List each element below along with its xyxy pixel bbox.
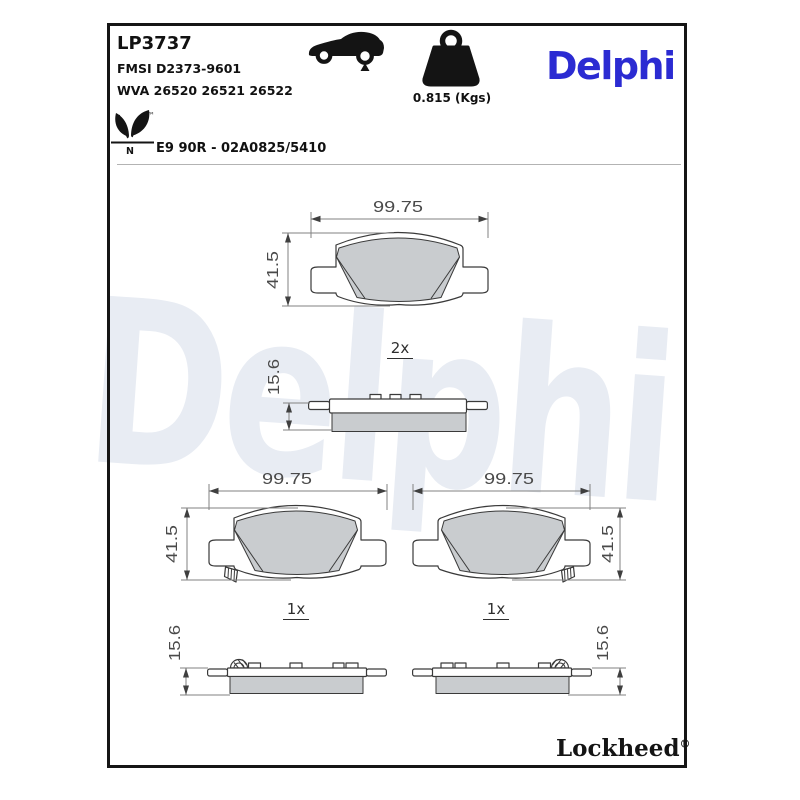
- delphi-logo: Delphi: [546, 44, 675, 88]
- bottom-right-pad-height-dimension: 41.5: [498, 498, 640, 590]
- svg-text:15.6: 15.6: [266, 359, 283, 395]
- lockheed-brand: Lockheed®: [556, 735, 691, 762]
- bottom-left-pad-height-dimension: 41.5: [163, 498, 305, 590]
- bottom-right-pad-thickness-dimension: 15.6: [556, 622, 642, 702]
- lockheed-wordmark: Lockheed: [556, 735, 680, 762]
- svg-text:15.6: 15.6: [595, 625, 612, 661]
- svg-text:41.5: 41.5: [600, 525, 617, 563]
- top-pad-thickness-dimension: 15.6: [256, 356, 344, 436]
- bottom-left-pad-quantity-label: 1x: [283, 600, 309, 620]
- bottom-right-pad-quantity-label: 1x: [483, 600, 509, 620]
- registered-trademark-symbol: ®: [680, 737, 691, 750]
- leaf-n-label: N: [126, 146, 134, 157]
- svg-text:99.75: 99.75: [373, 199, 423, 216]
- svg-text:99.75: 99.75: [262, 471, 312, 488]
- weight-value: 0.815 (Kgs): [404, 91, 500, 105]
- wva-reference: WVA 26520 26521 26522: [117, 83, 293, 98]
- svg-text:15.6: 15.6: [167, 625, 184, 661]
- car-rear-axle-icon: [306, 28, 388, 74]
- part-number: LP3737: [117, 33, 192, 54]
- fmsi-reference: FMSI D2373-9601: [117, 61, 241, 76]
- datasheet-page: { "header": { "part_number": "LP3737", "…: [0, 0, 800, 800]
- svg-text:99.75: 99.75: [484, 471, 534, 488]
- top-pad-height-dimension: 41.5: [260, 224, 400, 316]
- svg-text:41.5: 41.5: [265, 251, 282, 289]
- top-pad-quantity-label: 2x: [387, 339, 413, 359]
- leaf-trademark: ™: [147, 111, 155, 120]
- svg-text:41.5: 41.5: [164, 525, 181, 563]
- weight-icon: [419, 28, 483, 90]
- header-divider: [117, 164, 681, 165]
- homologation-number: E9 90R - 02A0825/5410: [156, 141, 326, 156]
- eco-leaf-icon: ™ N: [110, 104, 156, 158]
- bottom-left-pad-thickness-dimension: 15.6: [156, 622, 242, 702]
